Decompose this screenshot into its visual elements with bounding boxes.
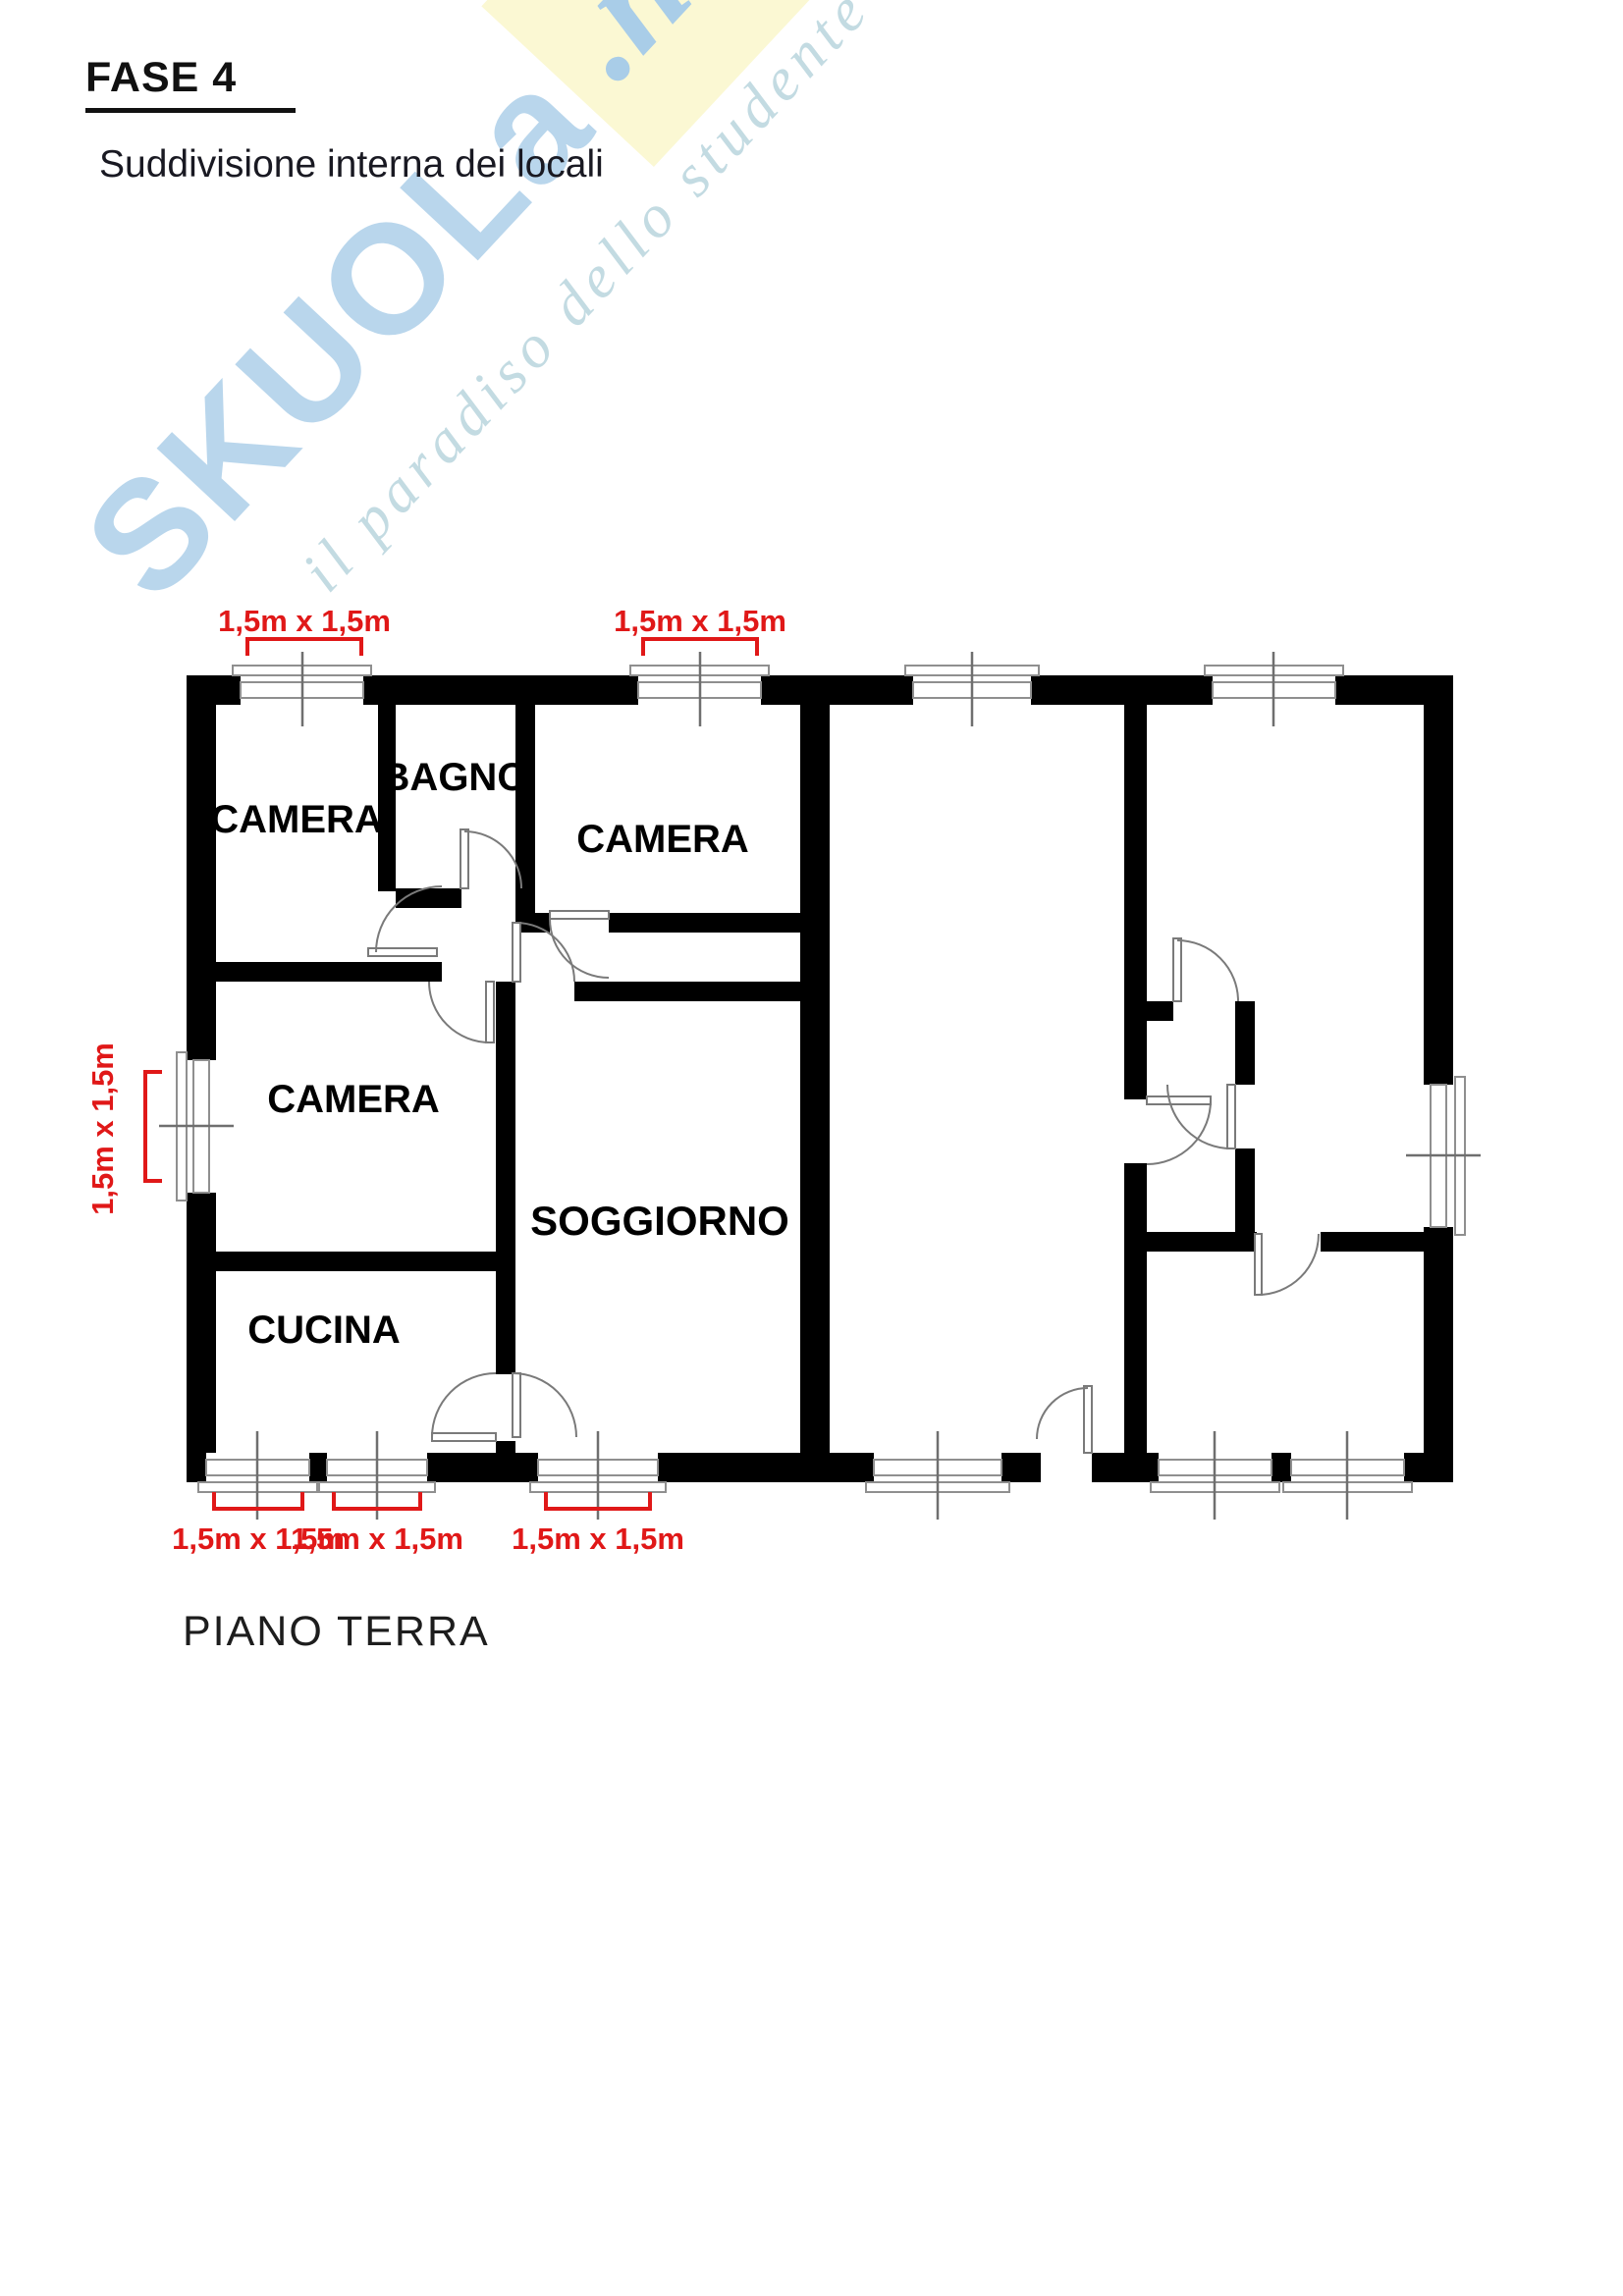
window (319, 1431, 435, 1520)
room-label-camera-2: CAMERA (576, 818, 749, 861)
window (630, 652, 769, 726)
door (460, 829, 521, 888)
window (1205, 652, 1343, 726)
page-subtitle: Suddivisione interna dei locali (99, 143, 604, 187)
room-label-camera-1: CAMERA (210, 798, 383, 841)
door (1147, 1096, 1211, 1164)
room-label-cucina: CUCINA (247, 1308, 401, 1352)
window (159, 1052, 234, 1201)
room-label-camera-3: CAMERA (267, 1078, 440, 1121)
room-label-soggiorno: SOGGIORNO (530, 1198, 789, 1244)
window (866, 1431, 1009, 1520)
floor-label: PIANO TERRA (183, 1608, 490, 1656)
door (432, 1373, 576, 1441)
window (198, 1431, 317, 1520)
window (1283, 1431, 1412, 1520)
door (550, 911, 609, 978)
dimension-label: 1,5m x 1,5m (291, 1522, 463, 1556)
window (530, 1431, 666, 1520)
page-title: FASE 4 (85, 54, 296, 113)
dimension-label: 1,5m x 1,5m (512, 1522, 684, 1556)
floor-plan: 1,5m x 1,5m 1,5m x 1,5m 1,5m x 1,5m 1,5m… (0, 0, 1623, 2296)
window (1406, 1077, 1481, 1235)
window (905, 652, 1039, 726)
window (1151, 1431, 1279, 1520)
dimension-label: 1,5m x 1,5m (614, 604, 786, 638)
door (1167, 1085, 1235, 1148)
dimension-label: 1,5m x 1,5m (85, 1042, 120, 1215)
door (429, 982, 494, 1042)
room-label-bagno: BAGNO (382, 756, 528, 799)
window (233, 652, 371, 726)
door (1037, 1386, 1092, 1482)
door (1255, 1234, 1319, 1295)
dimension-label: 1,5m x 1,5m (218, 604, 391, 638)
door (1173, 938, 1238, 1001)
